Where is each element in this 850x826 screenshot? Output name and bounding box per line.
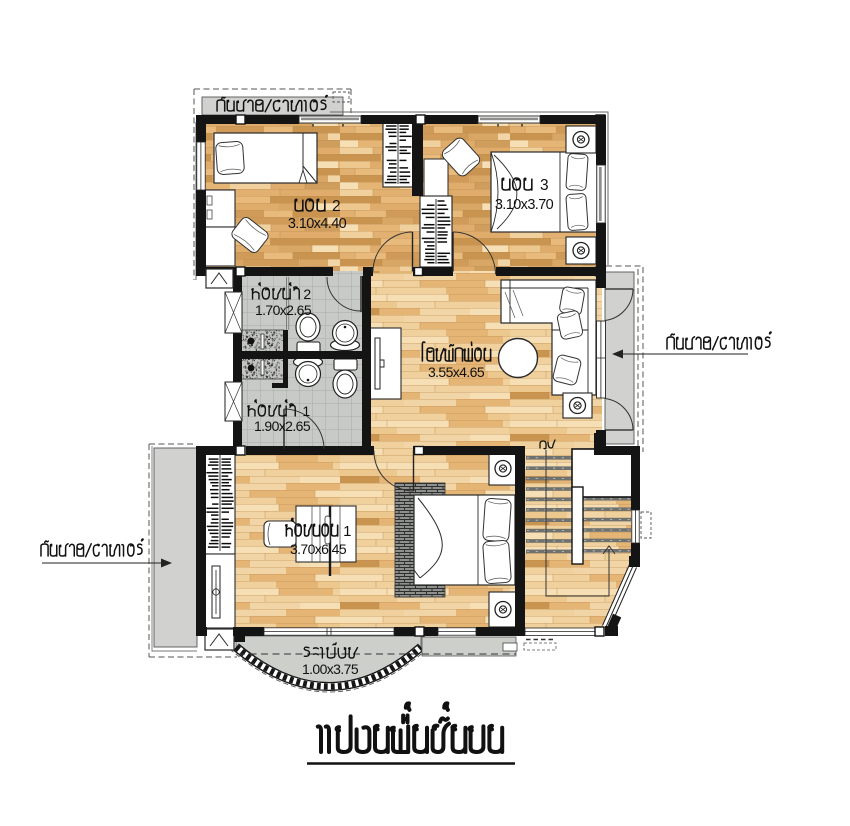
svg-text:2: 2 <box>303 286 311 302</box>
svg-text:2: 2 <box>332 198 340 215</box>
svg-text:3.55x4.65: 3.55x4.65 <box>428 364 485 380</box>
svg-text:1: 1 <box>343 523 351 540</box>
svg-text:1: 1 <box>302 403 310 419</box>
svg-text:3.70x6.45: 3.70x6.45 <box>290 541 347 557</box>
svg-text:3.10x3.70: 3.10x3.70 <box>495 197 554 213</box>
svg-text:1.90x2.65: 1.90x2.65 <box>254 418 311 434</box>
svg-text:3: 3 <box>540 177 548 194</box>
svg-text:1.70x2.65: 1.70x2.65 <box>255 302 312 318</box>
svg-text:3.10x4.40: 3.10x4.40 <box>288 216 347 232</box>
svg-text:1.00x3.75: 1.00x3.75 <box>302 661 359 677</box>
